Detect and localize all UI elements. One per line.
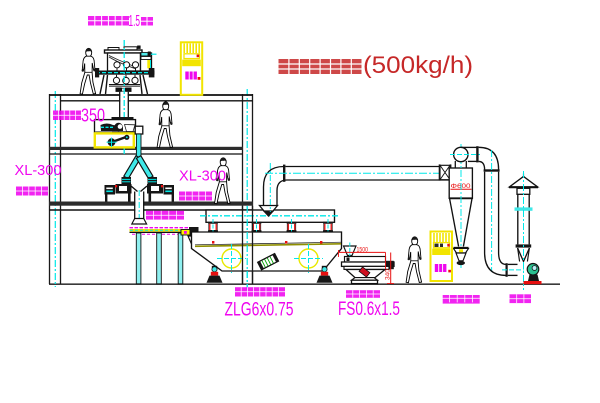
svg-text:XL-300: XL-300 <box>15 162 62 179</box>
svg-text:1.5: 1.5 <box>129 13 141 30</box>
svg-text:350: 350 <box>81 106 105 126</box>
svg-text:(500kg/h): (500kg/h) <box>363 52 473 79</box>
svg-text:340: 340 <box>384 269 391 280</box>
svg-text:1500: 1500 <box>357 247 369 254</box>
svg-text:ZLG6x0.75: ZLG6x0.75 <box>225 300 294 321</box>
svg-text:FS0.6x1.5: FS0.6x1.5 <box>338 299 400 320</box>
svg-text:XL-300: XL-300 <box>179 168 226 185</box>
